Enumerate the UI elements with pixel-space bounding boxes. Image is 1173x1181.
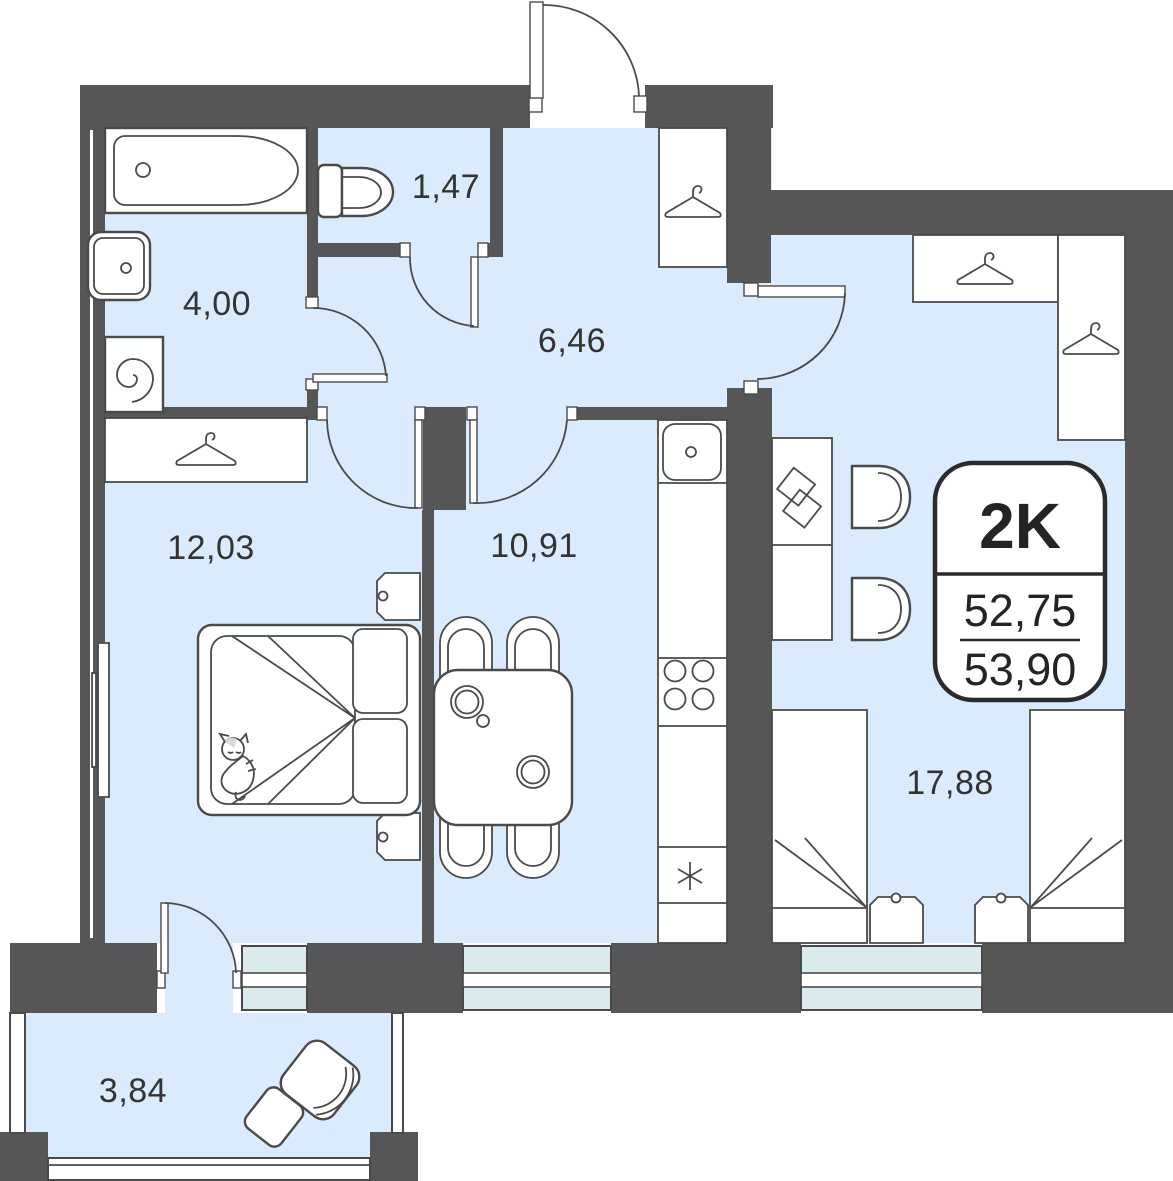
dining-chair	[440, 818, 492, 878]
sink-icon	[88, 232, 150, 300]
hallway-area-label: 6,46	[538, 322, 606, 360]
single-bed-left	[772, 710, 867, 943]
bathroom-area-label: 4,00	[183, 285, 251, 323]
bedroom-wardrobe	[105, 418, 307, 482]
nightstand	[975, 894, 1028, 944]
entrance-door	[529, 2, 647, 112]
washing-machine-icon	[105, 337, 163, 412]
hallway-wardrobe	[659, 128, 727, 267]
living-area-label: 17,88	[906, 764, 994, 802]
living-wardrobe-top	[913, 235, 1058, 302]
nightstand	[377, 813, 420, 860]
dining-chair	[507, 617, 559, 677]
nightstand	[870, 894, 923, 944]
double-bed-icon	[198, 625, 420, 815]
bathtub-icon	[105, 128, 307, 213]
living-window	[801, 946, 982, 1010]
dining-chair	[440, 617, 492, 677]
badge-living-area: 52,75	[964, 585, 1077, 636]
badge-type-label: 2K	[979, 490, 1061, 562]
toilet-icon	[318, 165, 393, 217]
bedroom-window	[242, 946, 307, 1010]
kitchen-window	[463, 946, 611, 1010]
living-wardrobe-right	[1058, 235, 1125, 440]
balcony-area-label: 3,84	[99, 1072, 167, 1110]
badge-total-area: 53,90	[964, 644, 1077, 695]
kitchen-counter	[658, 420, 727, 943]
dining-chair	[507, 818, 559, 878]
nightstand	[377, 573, 420, 620]
desk-chair	[852, 578, 910, 640]
kitchen-area-label: 10,91	[490, 527, 578, 565]
bedroom-area-label: 12,03	[167, 529, 255, 567]
apartment-badge: 2K 52,75 53,90	[935, 463, 1105, 700]
desk	[772, 438, 832, 640]
desk-chair	[852, 466, 910, 528]
toilet-area-label: 1,47	[412, 168, 480, 206]
dining-table-icon	[434, 670, 572, 825]
floor-plan-page: 4,00 1,47 6,46 12,03 10,91 17,88 3,84 2K…	[0, 0, 1173, 1181]
floor-plan: 4,00 1,47 6,46 12,03 10,91 17,88 3,84 2K…	[0, 0, 1173, 1181]
kitchen-sink-icon	[663, 424, 721, 480]
single-bed-right	[1030, 710, 1125, 943]
